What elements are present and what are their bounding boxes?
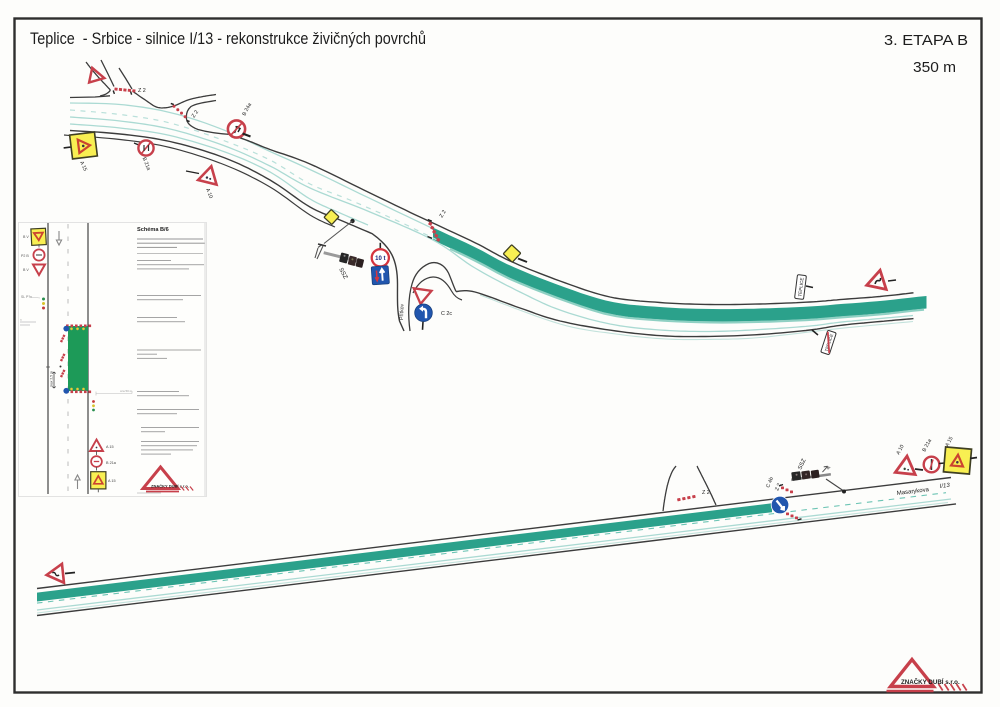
svg-text:10 t: 10 t xyxy=(375,256,385,262)
svg-text:Teplice - Srbice - silnice I/: Teplice - Srbice - silnice I/13 - rekons… xyxy=(30,30,426,48)
svg-text:350 m: 350 m xyxy=(913,59,956,76)
svg-text:Z 2: Z 2 xyxy=(702,490,710,496)
svg-text:Schéma B/6: Schéma B/6 xyxy=(137,227,169,233)
svg-text:Z 2: Z 2 xyxy=(138,88,146,94)
svg-text:B V: B V xyxy=(23,235,29,239)
svg-text:B 21a: B 21a xyxy=(106,461,117,465)
svg-text:B V: B V xyxy=(23,268,29,272)
svg-text:P2 B: P2 B xyxy=(21,254,29,258)
svg-text:×: × xyxy=(20,318,22,322)
svg-text:cca 50 m: cca 50 m xyxy=(120,389,133,393)
svg-text:max 2,5 m: max 2,5 m xyxy=(50,371,54,387)
svg-text:A 15: A 15 xyxy=(108,479,116,483)
svg-text:3. ETAPA B: 3. ETAPA B xyxy=(884,32,968,49)
svg-text:C 2c: C 2c xyxy=(441,311,452,317)
svg-text:ZNAČKY DUBÍ s.r.o.: ZNAČKY DUBÍ s.r.o. xyxy=(151,484,189,489)
svg-text:A 15: A 15 xyxy=(106,445,114,449)
svg-text:Přítkov: Přítkov xyxy=(399,303,406,320)
